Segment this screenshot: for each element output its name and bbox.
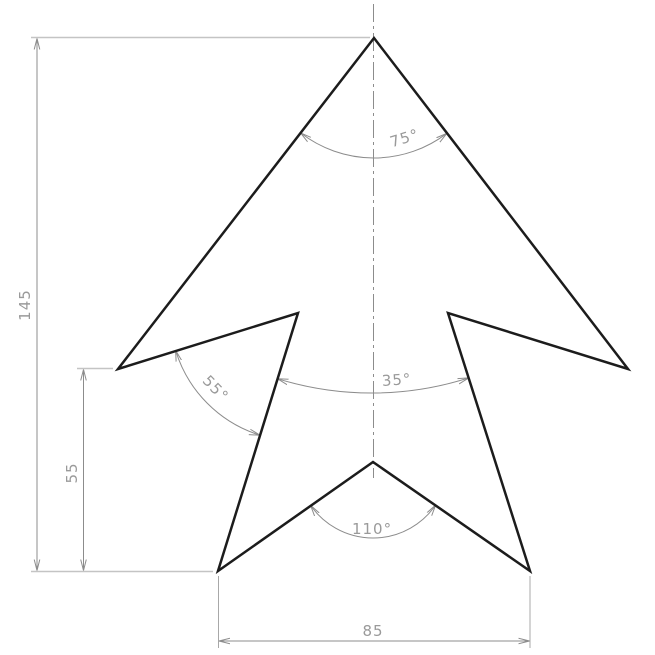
angle-label-legs: 35° — [381, 370, 412, 390]
angle-label-notch: 110° — [352, 520, 392, 538]
angle-label-apex: 75° — [388, 125, 422, 151]
dimension-label-wing-height: 55 — [63, 462, 81, 483]
drawing-canvas: 145 55 85 75° 55° 35° 110° — [0, 0, 655, 655]
dimension-label-total-height: 145 — [16, 289, 34, 321]
dimension-label-base-width: 85 — [362, 622, 383, 640]
technical-drawing: 145 55 85 75° 55° 35° 110° — [0, 0, 655, 655]
